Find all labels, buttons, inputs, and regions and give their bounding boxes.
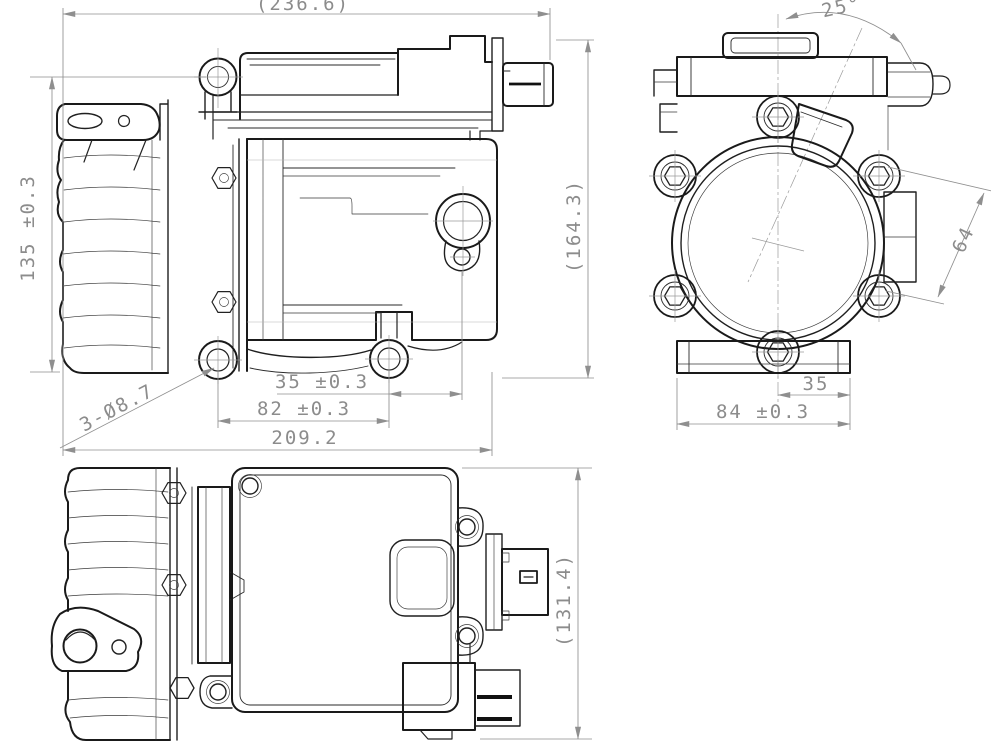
dim-base-width-label: 84 ±0.3 — [716, 401, 810, 423]
dimension-annotations: (236.6) 135 ±0.3 3-Ø8.7 35 ±0.3 82 ±0.3 … — [17, 0, 991, 739]
bolt-boss — [752, 326, 804, 378]
side-view — [57, 36, 553, 384]
dim-mount-hole-height: 135 ±0.3 — [17, 77, 206, 372]
bolt-boss — [853, 150, 905, 202]
side-stud — [212, 168, 236, 189]
dim-overall-length-label: (236.6) — [256, 0, 350, 15]
dim-overall-height: (164.3) — [502, 40, 594, 378]
top-cap — [723, 33, 818, 58]
end-view — [649, 14, 950, 404]
mount-lug-bottom — [52, 608, 194, 699]
dim-holes-callout-label: 3-Ø8.7 — [76, 380, 158, 437]
discharge-port-boss — [433, 186, 493, 276]
bolt-boss — [649, 150, 701, 202]
cover-screw — [207, 681, 230, 704]
inverter-cover — [200, 468, 483, 712]
cover-screw — [239, 475, 262, 498]
bottom-view — [52, 468, 548, 740]
dim-bolt-diagonal-label: 64 — [948, 223, 979, 257]
dim-port-angle: 25° — [786, 0, 916, 70]
side-connector — [486, 534, 548, 630]
right-pad — [884, 192, 916, 282]
side-stud — [212, 292, 236, 313]
cover-screw — [456, 625, 479, 648]
dim-port-angle-label: 25° — [820, 0, 864, 22]
suction-line-assembly — [199, 36, 553, 140]
dim-center-to-edge-label: 35 — [803, 373, 830, 395]
dim-base-length-label: 209.2 — [271, 427, 338, 449]
motor-housing-bottom — [65, 468, 192, 740]
right-fitting — [888, 63, 950, 150]
bottom-connector — [403, 644, 520, 739]
dim-overall-depth-label: (131.4) — [553, 553, 575, 647]
dim-mount-hole-height-label: 135 ±0.3 — [17, 174, 39, 282]
dim-bolt-diagonal: 64 — [886, 167, 991, 304]
dim-holes-callout: 3-Ø8.7 — [60, 368, 214, 448]
left-tabs — [654, 70, 677, 132]
cover-screw — [456, 516, 479, 539]
dim-hole-spacing-label: 82 ±0.3 — [257, 398, 351, 420]
top-bracket — [677, 57, 887, 96]
dim-overall-height-label: (164.3) — [563, 179, 585, 273]
motor-housing — [57, 100, 168, 373]
drawing-svg: (236.6) 135 ±0.3 3-Ø8.7 35 ±0.3 82 ±0.3 … — [0, 0, 991, 746]
drawing-canvas: (236.6) 135 ±0.3 3-Ø8.7 35 ±0.3 82 ±0.3 … — [0, 0, 991, 746]
dim-hole-to-port-label: 35 ±0.3 — [275, 371, 369, 393]
bolt-boss — [649, 270, 701, 322]
